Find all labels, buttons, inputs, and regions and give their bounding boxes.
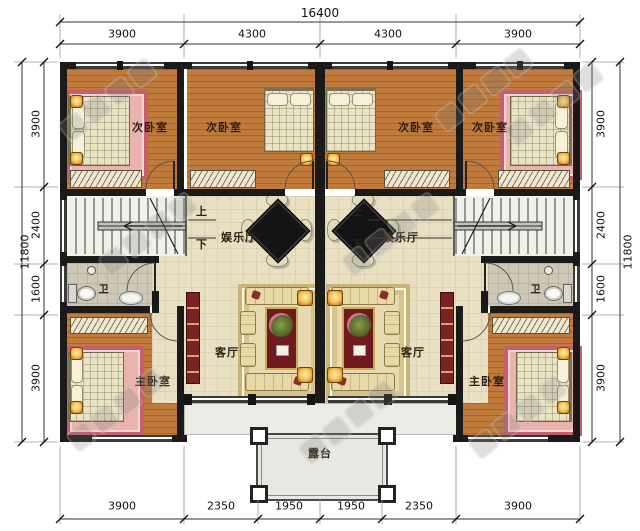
- wall: [456, 62, 463, 196]
- floor-drain: [544, 266, 553, 275]
- terrace-post: [250, 485, 268, 503]
- dim-right-overall: 11800: [622, 235, 635, 270]
- window-mullion: [387, 61, 393, 70]
- floor-lamp: [297, 290, 313, 306]
- wardrobe: [384, 170, 450, 188]
- flower-arrangement: [269, 313, 293, 337]
- dim-bottom-segment: 1950: [337, 500, 365, 513]
- door-post: [307, 394, 315, 405]
- wall: [177, 62, 184, 196]
- dim-right-segment: 1600: [595, 275, 608, 303]
- room-label-living-room: 客厅: [401, 344, 425, 360]
- wall: [573, 62, 580, 442]
- wardrobe: [70, 317, 148, 334]
- floor-lamp: [327, 367, 343, 383]
- sink: [119, 291, 143, 305]
- dim-right-segment: 3900: [595, 364, 608, 392]
- wardrobe: [190, 170, 256, 188]
- window-mullion: [117, 61, 123, 70]
- flower-arrangement: [347, 313, 371, 337]
- window: [573, 200, 580, 252]
- room-label-secondary-bedroom: 次卧室: [206, 119, 242, 135]
- wall: [152, 291, 159, 313]
- wall: [60, 189, 146, 196]
- dim-top-segment: 4300: [238, 28, 266, 41]
- toilet-tank: [68, 284, 77, 303]
- toilet-tank: [563, 284, 572, 303]
- dim-left-segment: 3900: [30, 110, 43, 138]
- nightstand-lamp: [327, 153, 340, 166]
- pillow: [267, 93, 288, 106]
- nightstand-lamp: [557, 347, 570, 360]
- nightstand-lamp: [557, 152, 570, 165]
- window: [573, 266, 580, 302]
- dim-right-segment: 2400: [595, 211, 608, 239]
- headboard: [326, 88, 376, 91]
- wall: [456, 306, 463, 442]
- pillow: [329, 93, 350, 106]
- wall: [490, 306, 580, 313]
- floor-plan: 次卧室 次卧室 次卧室 次卧室 主卧室 主卧室 娱乐厅 娱乐厅 客厅 客厅 卫 …: [0, 0, 640, 531]
- headboard: [264, 88, 314, 91]
- toilet: [544, 286, 563, 301]
- dim-right-segment: 3900: [595, 110, 608, 138]
- armchair: [240, 311, 256, 335]
- nightstand-lamp: [70, 152, 83, 165]
- nightstand-lamp: [300, 153, 313, 166]
- window: [60, 266, 67, 302]
- tv-cabinet: [186, 292, 200, 384]
- armchair: [384, 311, 400, 335]
- stair-label-up: 上: [352, 203, 364, 219]
- room-label-master-bedroom: 主卧室: [469, 373, 505, 389]
- wall: [355, 189, 466, 196]
- dim-bottom-segment: 3900: [108, 500, 136, 513]
- door-post: [448, 394, 456, 405]
- stair-label-down: 下: [196, 236, 208, 252]
- wall: [481, 256, 580, 263]
- pillow: [352, 93, 373, 106]
- sink: [497, 291, 521, 305]
- right-stairs-floor: [454, 196, 573, 256]
- floor-lamp: [297, 367, 313, 383]
- floor-lamp: [327, 290, 343, 306]
- armchair: [240, 343, 256, 367]
- dim-left-segment: 3900: [30, 364, 43, 392]
- nightstand-lamp: [70, 401, 83, 414]
- dim-left-segment: 1600: [30, 275, 43, 303]
- terrace-post: [250, 427, 268, 445]
- nightstand-lamp: [70, 347, 83, 360]
- pillow: [71, 357, 83, 383]
- dim-top-segment: 3900: [504, 28, 532, 41]
- floor-drain: [87, 266, 96, 275]
- dim-left-overall: 11800: [19, 235, 32, 270]
- room-label-bathroom: 卫: [531, 281, 542, 296]
- table-tray: [353, 345, 366, 356]
- window: [60, 200, 67, 252]
- terrace-post: [378, 485, 396, 503]
- dim-top-segment: 3900: [108, 28, 136, 41]
- party-wall: [315, 62, 325, 403]
- wardrobe: [498, 170, 570, 188]
- dim-top-segment: 4300: [374, 28, 402, 41]
- window-mullion: [247, 61, 253, 70]
- dim-top-overall: 16400: [301, 6, 339, 20]
- room-label-bathroom: 卫: [99, 281, 110, 296]
- pillow: [290, 93, 311, 106]
- door-post: [248, 394, 256, 405]
- room-label-recreation-hall: 娱乐厅: [221, 229, 257, 245]
- wardrobe: [492, 317, 570, 334]
- dim-left-segment: 2400: [30, 211, 43, 239]
- room-label-secondary-bedroom: 次卧室: [132, 119, 168, 135]
- stair-label-up: 上: [196, 203, 208, 219]
- dim-bottom-segment: 2350: [207, 500, 235, 513]
- room-label-secondary-bedroom: 次卧室: [472, 119, 508, 135]
- terrace-post: [378, 427, 396, 445]
- dim-bottom-segment: 3900: [504, 500, 532, 513]
- door-post: [184, 394, 192, 405]
- room-label-living-room: 客厅: [215, 344, 239, 360]
- tv-cabinet: [440, 292, 454, 384]
- dim-bottom-segment: 2350: [405, 500, 433, 513]
- armchair: [384, 343, 400, 367]
- wall: [177, 306, 184, 442]
- table-tray: [276, 345, 289, 356]
- wall: [60, 306, 150, 313]
- wardrobe: [70, 170, 142, 188]
- wall: [174, 189, 285, 196]
- nightstand-lamp: [557, 401, 570, 414]
- window: [92, 435, 172, 442]
- dim-bottom-segment: 1950: [275, 500, 303, 513]
- wall: [481, 291, 488, 313]
- wall: [494, 189, 580, 196]
- room-label-secondary-bedroom: 次卧室: [398, 119, 434, 135]
- toilet: [77, 286, 96, 301]
